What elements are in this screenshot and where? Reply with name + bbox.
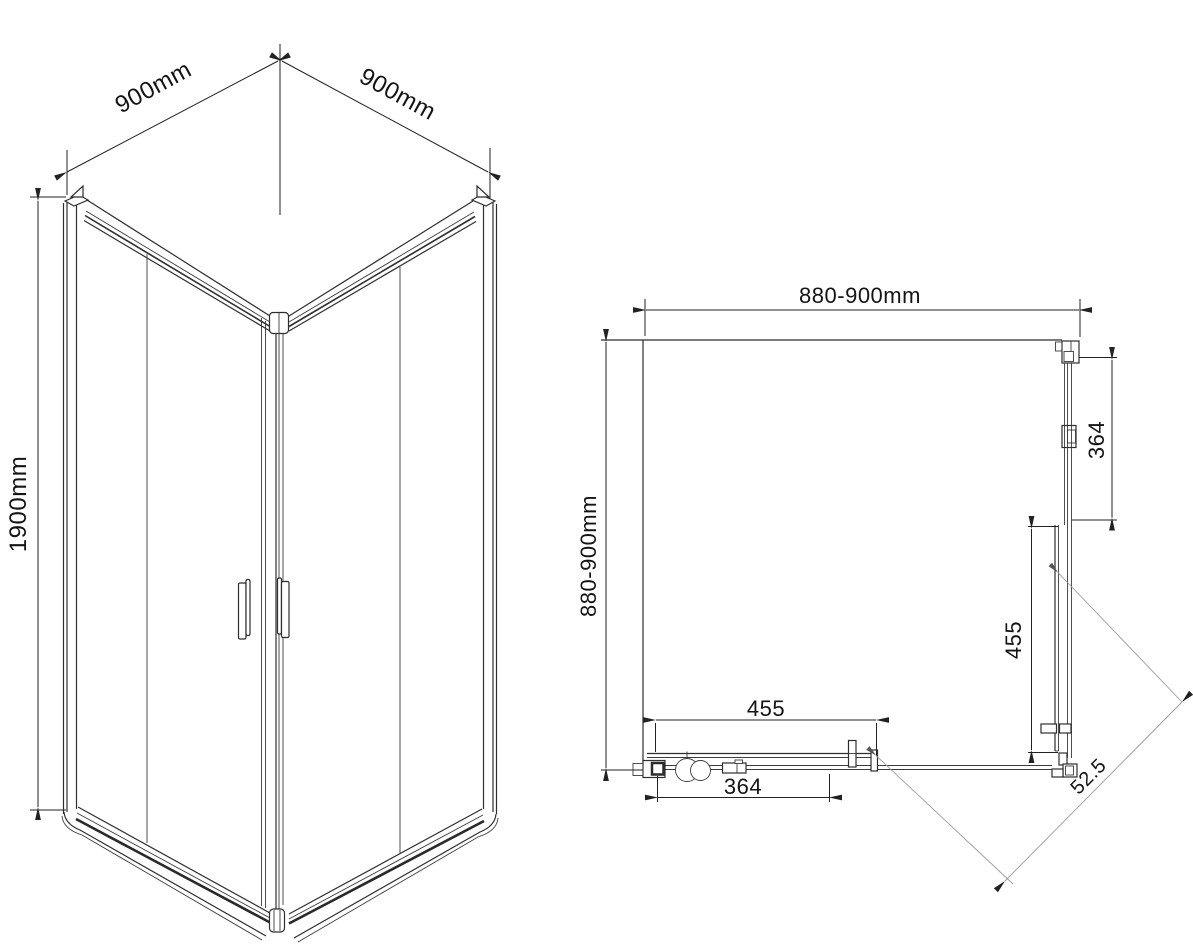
dim-label-iso-width-right: 900mm (355, 63, 440, 126)
iso-left-post (64, 186, 89, 814)
shower-enclosure-drawing: 1900mm 900mm 900mm 880-900mm 880-900mm (0, 0, 1193, 952)
dim-label-plan-width: 880-900mm (799, 283, 921, 308)
iso-bottom-rail-left (62, 807, 270, 940)
iso-right-door-handle (278, 578, 290, 638)
plan-bottom-right-corner-post (1052, 753, 1077, 777)
iso-glass-edges (147, 254, 400, 910)
iso-right-post (472, 186, 497, 814)
iso-extension-lines (30, 44, 490, 810)
dim-label-right-upper: 364 (1084, 421, 1109, 459)
iso-top-rail-left (84, 200, 270, 331)
plan-overall-dimensions: 880-900mm 880-900mm (576, 283, 1080, 770)
plan-right-wall-assembly (1041, 341, 1079, 777)
iso-dimension-lines (38, 61, 488, 807)
plan-right-door-handle (1041, 724, 1071, 733)
plan-bottom-dimensions: 455 364 (656, 696, 877, 802)
technical-drawing-page: 1900mm 900mm 900mm 880-900mm 880-900mm (0, 0, 1193, 952)
iso-center-post-cap (270, 313, 289, 334)
dim-label-bottom-upper: 455 (747, 696, 785, 721)
iso-center-post-foot (270, 909, 285, 932)
plan-door-rollers (676, 752, 711, 782)
dim-label-diagonal: 52.5 (1067, 755, 1112, 800)
plan-right-dimensions: 364 455 (1001, 358, 1117, 753)
plan-walls (601, 340, 1062, 762)
iso-bottom-rail-right (289, 809, 498, 942)
iso-top-rail-right (289, 201, 476, 331)
dim-label-bottom-lower: 364 (724, 774, 762, 799)
plan-bottom-door-handle (849, 741, 857, 768)
plan-door-guide-clip (723, 760, 747, 773)
dim-label-iso-height: 1900mm (5, 456, 32, 552)
plan-right-sliding-door (1055, 525, 1059, 751)
dim-label-right-lower: 455 (1001, 621, 1026, 659)
iso-left-door-handle (239, 580, 251, 640)
plan-diagonal-dimension: 52.5 (876, 573, 1182, 885)
plan-bottom-left-corner-profile (633, 761, 665, 778)
plan-top-right-wall-profile (1056, 341, 1080, 363)
dim-label-plan-depth: 880-900mm (576, 495, 601, 617)
isometric-view: 1900mm 900mm 900mm (5, 44, 498, 942)
plan-bottom-wall-assembly (633, 741, 1052, 782)
plan-view: 880-900mm 880-900mm (576, 283, 1182, 884)
dim-label-iso-width-left: 900mm (111, 56, 196, 119)
